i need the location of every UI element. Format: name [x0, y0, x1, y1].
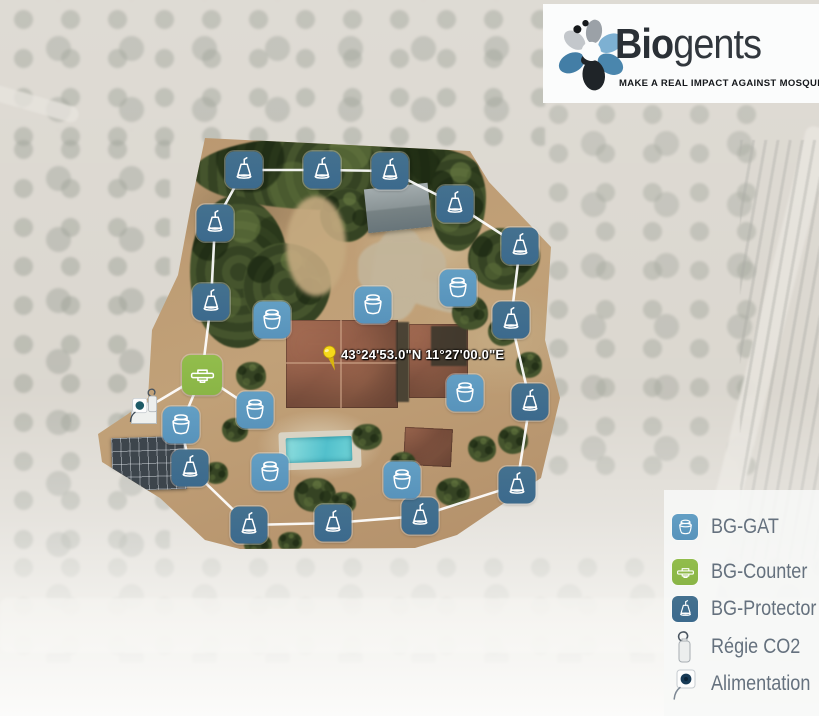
bg-gat-marker[interactable] — [163, 407, 200, 444]
legend-item-bg-protector: BG-Protector — [672, 596, 819, 622]
bg-protector-icon — [201, 209, 230, 238]
bg-gat-marker[interactable] — [440, 270, 477, 307]
bg-protector-marker[interactable] — [172, 450, 209, 487]
bg-protector-icon — [230, 156, 259, 185]
bg-protector-marker[interactable] — [197, 205, 234, 242]
bg-protector-icon — [497, 306, 526, 335]
bg-protector-icon — [319, 509, 348, 538]
bg-protector-marker[interactable] — [315, 505, 352, 542]
legend-item-alimentation: Alimentation — [672, 669, 819, 699]
bg-gat-marker[interactable] — [384, 462, 421, 499]
legend-label: BG-GAT — [711, 515, 779, 539]
co2-regulator-icon — [672, 632, 698, 662]
bg-protector-icon — [176, 454, 205, 483]
bg-counter-marker[interactable] — [182, 355, 222, 395]
legend-label: BG-Protector — [711, 597, 816, 621]
pushpin-icon — [322, 344, 342, 374]
bg-protector-icon — [406, 502, 435, 531]
bg-counter-icon — [188, 361, 217, 390]
bg-gat-icon — [167, 411, 196, 440]
bg-protector-marker[interactable] — [231, 507, 268, 544]
bg-gat-icon — [444, 274, 473, 303]
legend-label: Régie CO2 — [711, 635, 800, 659]
bg-protector-icon — [308, 156, 337, 185]
bg-gat-icon — [241, 396, 270, 425]
bg-protector-icon — [441, 190, 470, 219]
bg-gat-icon — [388, 466, 417, 495]
map-legend: BG-GAT BG-Counter BG-Protector Régie CO2… — [664, 490, 819, 716]
legend-label: Alimentation — [711, 672, 810, 696]
legend-item-bg-counter: BG-Counter — [672, 559, 819, 585]
bg-protector-icon — [503, 471, 532, 500]
bg-protector-marker[interactable] — [499, 467, 536, 504]
legend-item-co2: Régie CO2 — [672, 632, 815, 662]
brand-light: gents — [673, 20, 761, 67]
logo-panel: Biogents MAKE A REAL IMPACT AGAINST MOSQ… — [543, 4, 819, 103]
bg-gat-marker[interactable] — [355, 287, 392, 324]
bg-protector-marker[interactable] — [193, 284, 230, 321]
power-outlet-icon — [129, 396, 150, 423]
bg-protector-marker[interactable] — [304, 152, 341, 189]
bg-gat-marker[interactable] — [252, 454, 289, 491]
power-outlet-marker[interactable] — [129, 396, 150, 428]
aerial-map: 43°24'53.0"N 11°27'00.0"E Biogents MAKE … — [0, 0, 819, 716]
bg-protector-icon — [516, 388, 545, 417]
bg-protector-marker[interactable] — [493, 302, 530, 339]
coordinates-label: 43°24'53.0"N 11°27'00.0"E — [341, 347, 504, 362]
bg-protector-icon — [235, 511, 264, 540]
bg-protector-marker[interactable] — [226, 152, 263, 189]
bg-gat-icon — [359, 291, 388, 320]
brand-wordmark: Biogents — [615, 20, 761, 68]
brand-bold: Bio — [615, 20, 673, 67]
bg-protector-marker[interactable] — [502, 228, 539, 265]
bg-counter-icon — [672, 559, 698, 585]
bg-gat-icon — [256, 458, 285, 487]
legend-label: BG-Counter — [711, 560, 807, 584]
brand-tagline: MAKE A REAL IMPACT AGAINST MOSQUITOES — [619, 78, 819, 89]
bg-protector-marker[interactable] — [402, 498, 439, 535]
bg-protector-marker[interactable] — [372, 153, 409, 190]
bg-gat-icon — [258, 306, 287, 335]
legend-item-bg-gat: BG-GAT — [672, 514, 790, 540]
bg-protector-icon — [506, 232, 535, 261]
power-outlet-icon — [672, 669, 698, 699]
bg-protector-marker[interactable] — [512, 384, 549, 421]
map-pushpin[interactable] — [322, 344, 342, 379]
bg-gat-icon — [672, 514, 698, 540]
bg-protector-icon — [672, 596, 698, 622]
bg-protector-icon — [376, 157, 405, 186]
bg-gat-marker[interactable] — [447, 375, 484, 412]
bg-protector-marker[interactable] — [437, 186, 474, 223]
bg-gat-marker[interactable] — [254, 302, 291, 339]
bg-gat-marker[interactable] — [237, 392, 274, 429]
bg-protector-icon — [197, 288, 226, 317]
bg-gat-icon — [451, 379, 480, 408]
